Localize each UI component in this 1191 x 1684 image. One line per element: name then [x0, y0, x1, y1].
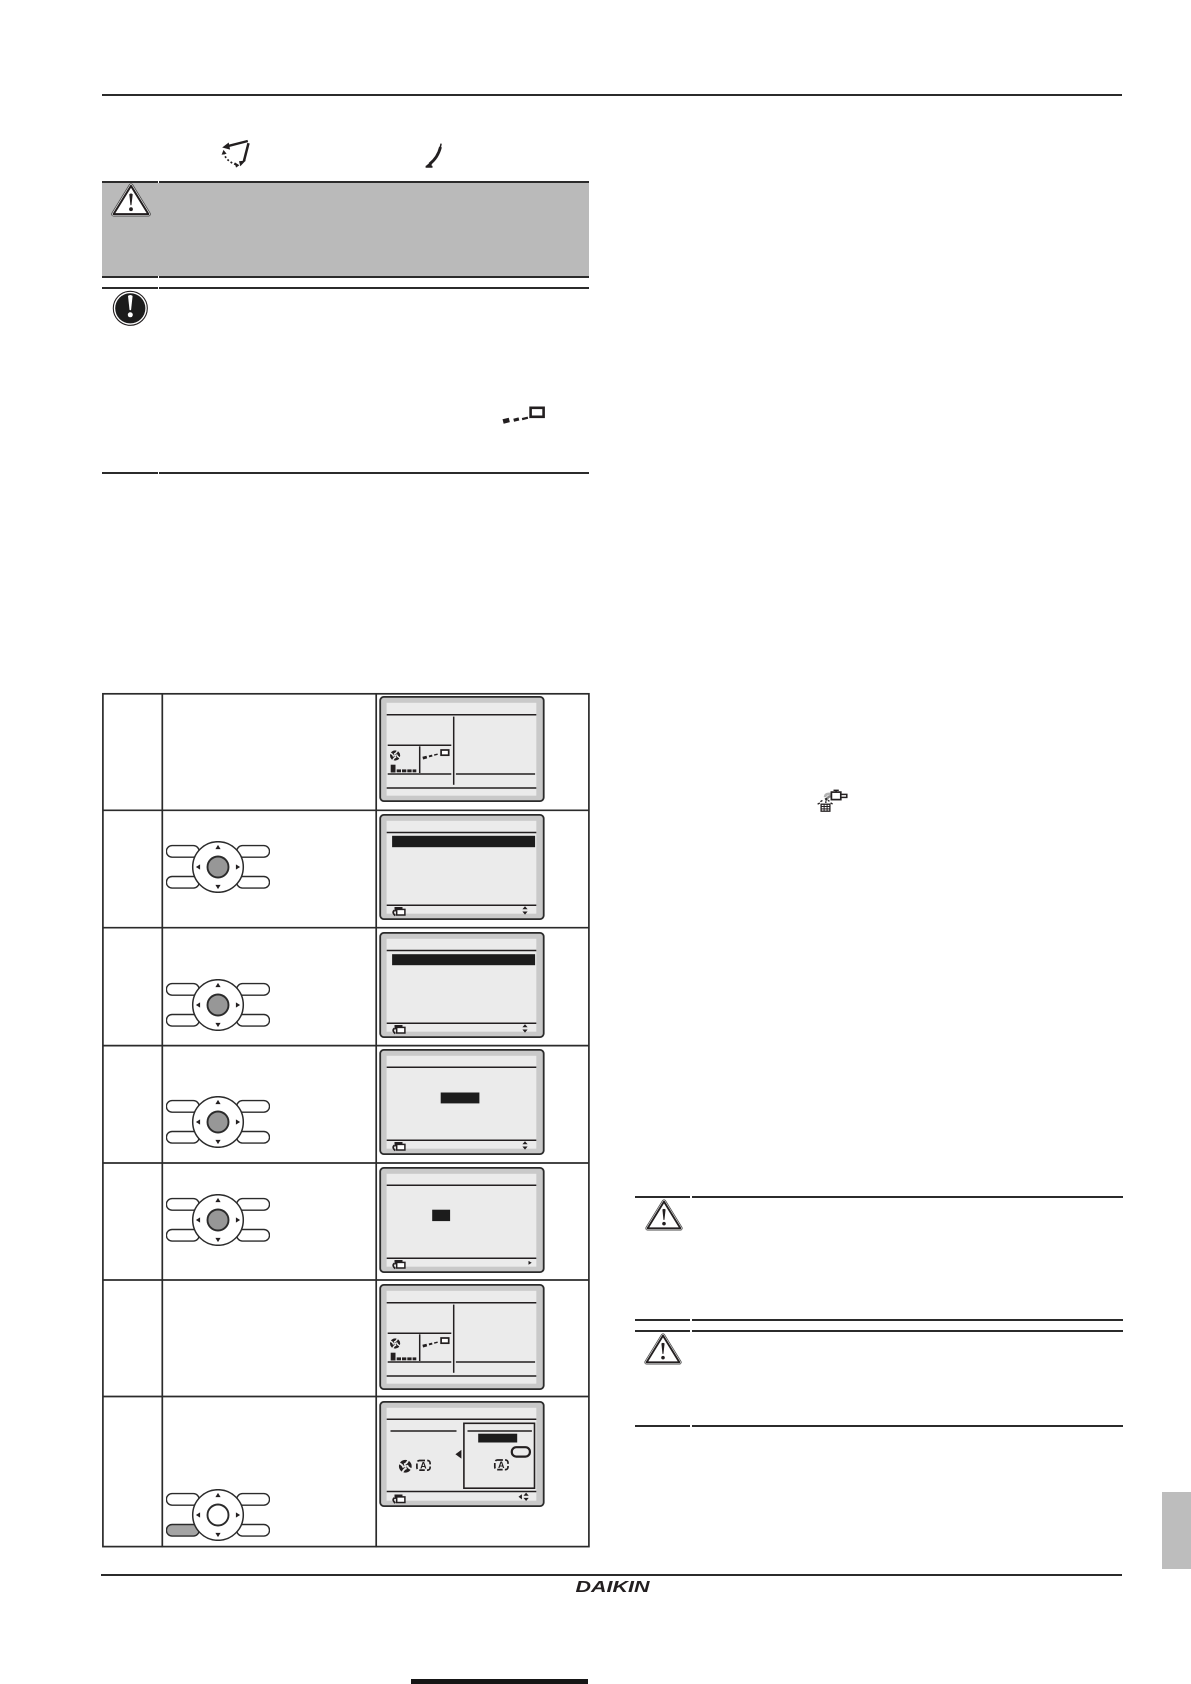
svg-text:DAIKIN: DAIKIN	[576, 1579, 651, 1596]
